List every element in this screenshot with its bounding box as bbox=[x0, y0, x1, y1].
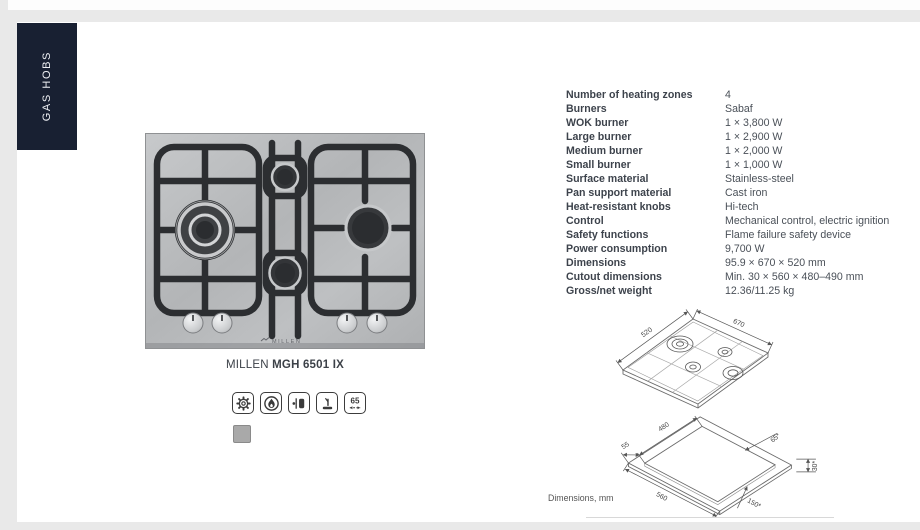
product-photo: MILLEN bbox=[145, 133, 425, 349]
spec-row: Pan support materialCast iron bbox=[566, 186, 920, 200]
spec-row: BurnersSabaf bbox=[566, 102, 920, 116]
cast-iron-support-icon bbox=[288, 392, 310, 414]
spec-row: Surface materialStainless-steel bbox=[566, 172, 920, 186]
spec-row: Medium burner1 × 2,000 W bbox=[566, 144, 920, 158]
spec-row: Power consumption9,700 W bbox=[566, 242, 920, 256]
svg-text:150*: 150* bbox=[746, 498, 762, 511]
svg-text:480: 480 bbox=[657, 421, 671, 433]
spec-label: Dimensions bbox=[566, 257, 725, 269]
spec-value: Sabaf bbox=[725, 103, 753, 115]
spec-value: Hi-tech bbox=[725, 201, 759, 213]
width-65-icon: 65 bbox=[344, 392, 366, 414]
product-title: MILLEN MGH 6501 IX bbox=[145, 359, 425, 371]
spec-row: Safety functionsFlame failure safety dev… bbox=[566, 228, 920, 242]
spec-value: Flame failure safety device bbox=[725, 229, 851, 241]
tab-gas-hobs-label: GAS HOBS bbox=[41, 51, 53, 121]
svg-text:65: 65 bbox=[351, 396, 360, 405]
spec-value: Mechanical control, electric ignition bbox=[725, 215, 889, 227]
large-burner bbox=[346, 206, 390, 250]
svg-text:55: 55 bbox=[621, 441, 631, 451]
spec-row: Heat-resistant knobsHi-tech bbox=[566, 200, 920, 214]
spec-label: Large burner bbox=[566, 131, 725, 143]
drawing-caption: Dimensions, mm bbox=[548, 493, 614, 503]
spec-value: 4 bbox=[725, 89, 731, 101]
spec-value: 1 × 3,800 W bbox=[725, 117, 782, 129]
svg-text:MILLEN: MILLEN bbox=[272, 339, 301, 345]
dimension-drawing-top-view: 520 670 bbox=[598, 309, 783, 415]
spec-value: 12.36/11.25 kg bbox=[725, 285, 794, 297]
spec-row: Small burner1 × 1,000 W bbox=[566, 158, 920, 172]
spec-label: Small burner bbox=[566, 159, 725, 171]
spec-label: Control bbox=[566, 215, 725, 227]
spec-label: Number of heating zones bbox=[566, 89, 725, 101]
spec-label: Gross/net weight bbox=[566, 285, 725, 297]
svg-text:560: 560 bbox=[655, 491, 669, 503]
spec-row: Cutout dimensionsMin. 30 × 560 × 480–490… bbox=[566, 270, 920, 284]
spec-value: 1 × 1,000 W bbox=[725, 159, 782, 171]
spec-label: WOK burner bbox=[566, 117, 725, 129]
spec-label: Medium burner bbox=[566, 145, 725, 157]
spec-value: Min. 30 × 560 × 480–490 mm bbox=[725, 271, 863, 283]
tab-gas-hobs[interactable]: GAS HOBS bbox=[17, 23, 77, 150]
burner-crown-icon bbox=[232, 392, 254, 414]
spec-label: Cutout dimensions bbox=[566, 271, 725, 283]
svg-text:520: 520 bbox=[640, 326, 654, 339]
spec-label: Safety functions bbox=[566, 229, 725, 241]
wok-burner bbox=[176, 201, 234, 259]
spec-label: Pan support material bbox=[566, 187, 725, 199]
gas-flame-icon bbox=[260, 392, 282, 414]
page-background: GAS HOBS bbox=[0, 0, 920, 530]
spec-label: Surface material bbox=[566, 173, 725, 185]
spec-value: 95.9 × 670 × 520 mm bbox=[725, 257, 826, 269]
section-divider bbox=[586, 517, 834, 518]
dimension-drawing-cutout: 55 480 65* 30* 560 150* bbox=[586, 412, 826, 518]
spec-row: Number of heating zones4 bbox=[566, 88, 920, 102]
flame-failure-ignition-icon bbox=[316, 392, 338, 414]
spec-value: 1 × 2,900 W bbox=[725, 131, 782, 143]
spec-row: Gross/net weight12.36/11.25 kg bbox=[566, 284, 920, 298]
spec-row: WOK burner1 × 3,800 W bbox=[566, 116, 920, 130]
spec-value: Cast iron bbox=[725, 187, 767, 199]
spec-table: Number of heating zones4BurnersSabafWOK … bbox=[566, 88, 920, 298]
feature-badges: 65 bbox=[232, 392, 366, 414]
spec-value: 9,700 W bbox=[725, 243, 764, 255]
svg-text:65*: 65* bbox=[770, 432, 783, 444]
color-swatch-stainless[interactable] bbox=[233, 425, 251, 443]
spec-value: Stainless-steel bbox=[725, 173, 794, 185]
spec-label: Heat-resistant knobs bbox=[566, 201, 725, 213]
previous-section-edge bbox=[8, 0, 920, 10]
spec-row: Large burner1 × 2,900 W bbox=[566, 130, 920, 144]
spec-label: Power consumption bbox=[566, 243, 725, 255]
product-brand: MILLEN bbox=[226, 359, 269, 371]
spec-row: Dimensions95.9 × 670 × 520 mm bbox=[566, 256, 920, 270]
medium-burner bbox=[270, 258, 301, 289]
product-model: MGH 6501 IX bbox=[272, 359, 344, 371]
svg-text:30*: 30* bbox=[812, 461, 819, 472]
spec-row: ControlMechanical control, electric igni… bbox=[566, 214, 920, 228]
spec-value: 1 × 2,000 W bbox=[725, 145, 782, 157]
small-burner bbox=[272, 164, 298, 190]
spec-label: Burners bbox=[566, 103, 725, 115]
